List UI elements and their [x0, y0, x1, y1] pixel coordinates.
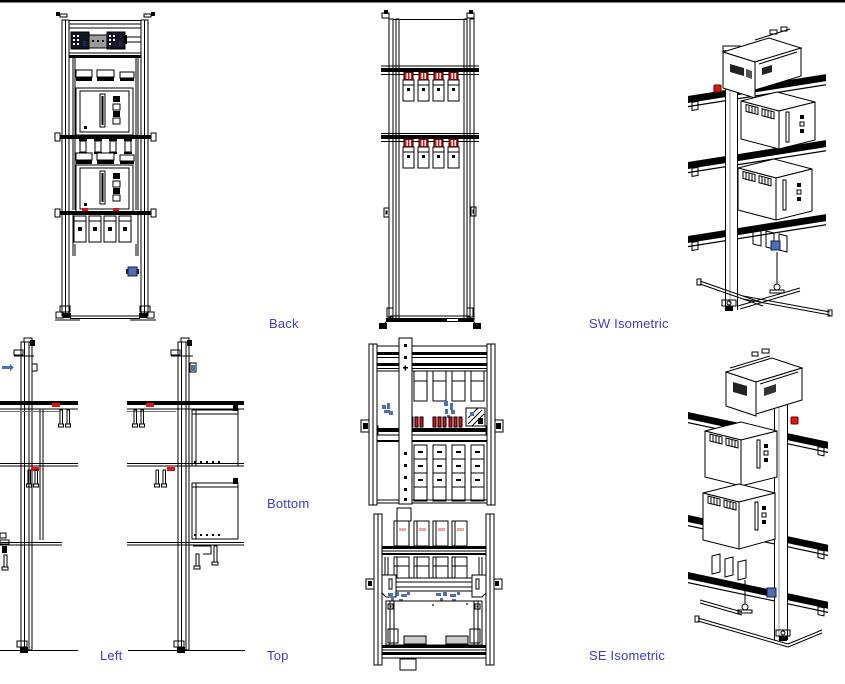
sw-iso-top-cap — [723, 27, 801, 98]
breaker-module-lower — [76, 165, 133, 212]
top-stub-upper — [397, 508, 411, 521]
view-label-top: Top — [267, 648, 289, 663]
left-blue-pin — [191, 365, 195, 371]
side-a-shelf-top — [0, 401, 78, 405]
top-stub-lower — [400, 659, 416, 670]
view-label-se-isometric: SE Isometric — [589, 648, 665, 663]
breaker-module-upper — [76, 88, 133, 135]
bottom-channel-2 — [433, 371, 446, 501]
top-channels — [385, 557, 482, 578]
view-label-left: Left — [100, 648, 122, 663]
se-iso-breaker-box-upper — [705, 422, 777, 486]
cad-layout-sheet: E E — [0, 0, 845, 684]
sheet-top-border — [0, 0, 845, 3]
sw-iso-breaker-box-upper — [741, 92, 815, 149]
back-fuse-row — [73, 215, 138, 256]
shelf-lower — [55, 211, 156, 215]
top-cross-member — [366, 575, 502, 597]
module-marking-right: E — [119, 42, 123, 48]
bottom-channel-4 — [471, 371, 484, 501]
side-view-partial — [0, 338, 78, 653]
cad-drawing: E E — [0, 0, 845, 684]
left-breaker-side-lower — [192, 478, 238, 539]
side-a-blue-pin — [2, 364, 14, 371]
top-tube-3 — [433, 521, 448, 546]
se-iso-top-cap — [726, 349, 802, 416]
view-label-bottom: Bottom — [267, 496, 309, 511]
shelf-upper — [55, 135, 156, 139]
left-breaker-side-upper — [192, 405, 238, 466]
top-tube-4 — [452, 521, 467, 546]
side-a-hook-upper — [59, 410, 71, 427]
vent-row-upper — [76, 70, 134, 81]
bottom-channel-1 — [414, 371, 427, 501]
bus-connectors — [79, 139, 132, 154]
side-a-red-ticks — [31, 403, 60, 471]
bottom-mid-bars — [377, 428, 487, 442]
view-label-back: Back — [269, 316, 299, 331]
left-view — [127, 338, 245, 653]
left-shelf-top — [127, 401, 244, 405]
sw-iso-base — [697, 252, 832, 316]
sw-iso-red-terminal — [714, 85, 721, 92]
top-bottom-bars — [374, 645, 494, 658]
left-hook-upper — [133, 410, 145, 427]
bottom-view — [361, 338, 503, 505]
vent-row-lower — [76, 153, 134, 164]
front-breaker-row-lower — [403, 139, 459, 168]
top-blue-wiring — [388, 592, 468, 606]
bottom-channel-3 — [452, 371, 465, 501]
view-label-sw-isometric: SW Isometric — [589, 316, 669, 331]
front-view — [379, 10, 481, 329]
top-view — [366, 508, 502, 670]
se-iso-breaker-box-lower — [703, 484, 775, 549]
se-iso-red-terminal — [791, 417, 798, 424]
left-red-ticks — [146, 403, 175, 471]
back-blue-clamp — [126, 267, 139, 276]
se-isometric-view — [688, 349, 828, 647]
back-view: E E — [55, 12, 156, 320]
se-iso-hanging-tabs — [712, 554, 746, 580]
left-hook-mid — [155, 470, 167, 487]
bottom-top-bars — [369, 346, 495, 371]
front-breaker-row-upper — [403, 72, 459, 101]
sw-iso-blue-clamp — [771, 241, 780, 250]
top-cross-bars — [382, 546, 486, 555]
top-open-frame — [386, 601, 482, 645]
bottom-red-contacts — [410, 417, 462, 427]
top-tube-2 — [414, 521, 429, 546]
module-marking-left: E — [83, 42, 87, 48]
top-tube-1 — [394, 521, 409, 546]
bottom-blue-parts — [382, 401, 455, 418]
se-iso-blue-clamp — [767, 588, 776, 597]
bottom-actuator-assembly — [466, 408, 485, 426]
back-top-control-box: E E — [69, 24, 141, 58]
sw-iso-breaker-box-lower — [738, 159, 812, 220]
bottom-center-post — [399, 338, 412, 504]
left-hook-bottom — [193, 546, 218, 569]
sw-isometric-view — [688, 27, 832, 316]
